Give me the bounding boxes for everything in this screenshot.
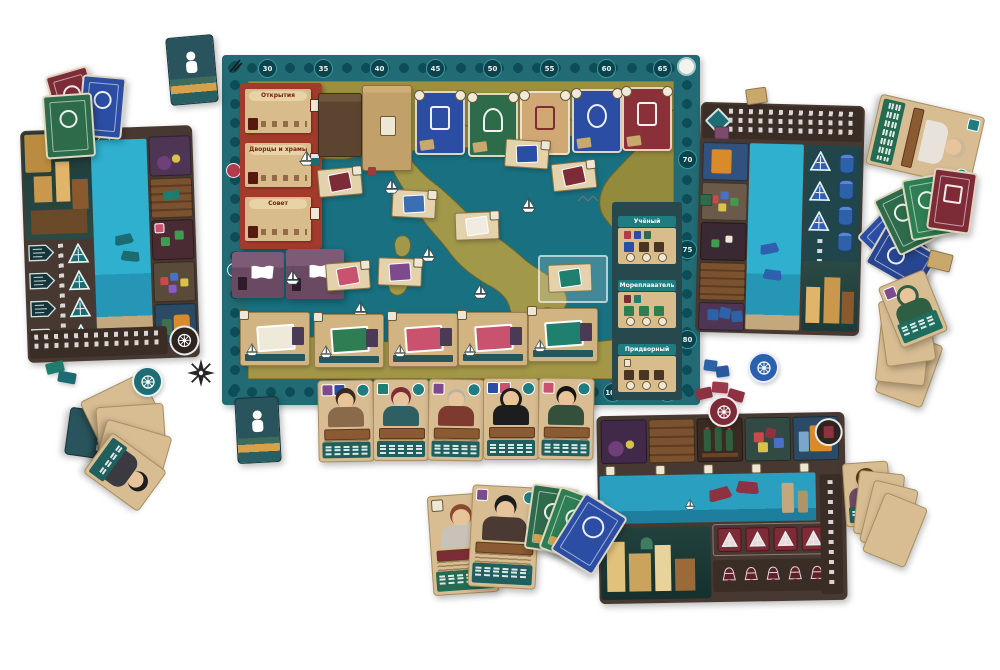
- harbor-town-scene: [801, 261, 859, 332]
- port-tile: [504, 138, 550, 169]
- goods-icon: [430, 106, 450, 130]
- resource-slot-planks: [150, 177, 193, 218]
- market-card-maroon: [622, 87, 672, 151]
- port-tile: [317, 166, 363, 198]
- action-row-label: Совет: [249, 199, 307, 209]
- maroon-piece: [695, 386, 713, 400]
- port-card: [458, 312, 528, 366]
- goods-icon: [587, 104, 607, 128]
- resource-slot-planks: [648, 418, 695, 463]
- red-cube-token: [368, 167, 376, 175]
- resource-slot-grapes: [698, 302, 745, 331]
- ship-icon: [284, 269, 301, 286]
- pennant-slot-icon: [28, 270, 57, 292]
- role-label: Придворный: [618, 344, 676, 355]
- maroon-piece: [712, 381, 729, 393]
- card-text-footer: [472, 562, 533, 585]
- stone-tower: [782, 483, 795, 513]
- goods-icon: [483, 108, 503, 132]
- score-number: 60: [597, 59, 616, 78]
- bell-token-red: [765, 565, 781, 583]
- ship-icon: [319, 345, 333, 359]
- wheel-disc-teal: [132, 366, 163, 397]
- ship-icon: [383, 178, 400, 195]
- resource-slot-grapes: [600, 419, 647, 464]
- stone-tower: [798, 491, 808, 513]
- quill-ornament-icon: [228, 58, 244, 74]
- action-icons: [261, 175, 307, 181]
- port-tile: [548, 263, 593, 293]
- ship-icon: [684, 498, 696, 510]
- score-number: 40: [370, 59, 389, 78]
- sail-token-blue: [807, 181, 832, 203]
- score-number: 30: [258, 59, 277, 78]
- shipyard-section: [801, 145, 862, 332]
- sail-token-blue: [808, 151, 833, 173]
- slot-cost-badge: [655, 465, 665, 475]
- marker-slot: [248, 172, 258, 184]
- player-board-blue: [695, 102, 865, 336]
- role-panel-column: Учёный Мореплаватель Придворный: [612, 202, 682, 400]
- blue-boat-piece: [758, 242, 779, 255]
- card-text-footer: [541, 440, 589, 457]
- teal-boat-piece: [120, 250, 141, 262]
- sail-token-blue: [807, 211, 832, 233]
- resource-slot-cellar: [700, 222, 747, 261]
- card-flap: [419, 139, 434, 151]
- red-boat-piece: [707, 485, 733, 503]
- sail-token-teal: [68, 297, 93, 319]
- ship-icon: [533, 339, 547, 353]
- harbor-water: [90, 139, 153, 333]
- red-boat-piece: [735, 481, 760, 495]
- bell-token-red: [787, 565, 803, 583]
- sail-token-teal: [67, 270, 92, 292]
- port-tile: [325, 260, 371, 291]
- slot-cost-badge: [751, 463, 761, 473]
- score-number: 70: [678, 150, 697, 169]
- score-number: 35: [314, 59, 333, 78]
- market-card-blue: [572, 89, 622, 153]
- wheel-icon: [169, 325, 200, 356]
- highlight-frame: [538, 255, 608, 303]
- bell-track: [713, 558, 832, 592]
- ship-icon: [463, 343, 477, 357]
- teal-piece: [163, 190, 180, 202]
- main-board: 30 35 40 45 50 55 60 65 70 75 80 95 100: [222, 55, 700, 405]
- market-card-blue: [415, 91, 465, 155]
- ship-icon: [393, 344, 407, 358]
- character-card: [483, 378, 539, 460]
- action-row: Открытия: [245, 89, 311, 133]
- card-text-footer: [487, 440, 535, 456]
- bell-token-red: [743, 565, 759, 583]
- player-board-teal: [20, 125, 200, 363]
- score-number: 50: [483, 59, 502, 78]
- ship-icon: [420, 246, 437, 263]
- blue-cube: [731, 310, 743, 322]
- name-banner: [434, 428, 480, 440]
- card-deck-tan: [362, 85, 412, 171]
- bottle-token-blue: [839, 154, 855, 174]
- port-tile: [378, 257, 423, 287]
- pennant-slot-icon: [27, 242, 56, 264]
- fan-card-maroon: [926, 167, 978, 235]
- red-sail-tile: [773, 527, 797, 551]
- bottle-token-blue: [839, 180, 855, 200]
- reference-card-person: [234, 396, 281, 464]
- ship-icon: [245, 343, 259, 357]
- card-flap: [626, 135, 641, 147]
- blue-cube: [719, 307, 732, 320]
- port-card: [388, 313, 458, 367]
- holder-slot: [238, 277, 247, 290]
- score-number: 55: [540, 59, 559, 78]
- action-icons: [261, 121, 307, 127]
- rosette-marker: [677, 57, 696, 76]
- resource-slot-goods: [153, 261, 196, 302]
- character-card: [427, 379, 484, 462]
- bonus-tile-purple: [714, 126, 729, 139]
- score-number: 45: [426, 59, 445, 78]
- pennant-slot-icon: [29, 298, 58, 320]
- blue-cube: [707, 309, 718, 320]
- action-icon-strip: [29, 326, 168, 359]
- person-icon: [180, 48, 202, 76]
- bottle-token-blue: [838, 206, 854, 226]
- player-board-red: [596, 412, 847, 604]
- red-sail-tile: [745, 527, 769, 551]
- building-icon: [637, 102, 657, 126]
- port-card: [314, 314, 384, 368]
- card-holder-purple: [232, 252, 284, 298]
- action-icon-strip: [819, 474, 843, 594]
- name-banner: [324, 429, 370, 441]
- table-scene: 30 35 40 45 50 55 60 65 70 75 80 95 100: [0, 0, 1000, 670]
- tier-badge: [310, 207, 320, 220]
- building-icon: [535, 106, 555, 130]
- card-text-footer: [870, 98, 906, 165]
- name-banner: [489, 427, 535, 438]
- card-flap: [576, 137, 591, 149]
- bell-token-red: [721, 566, 737, 584]
- slot-cost-badge: [605, 466, 615, 476]
- flag-icon: [248, 264, 276, 283]
- fan-card-green: [42, 92, 96, 159]
- port-card: [528, 308, 598, 362]
- ship-icon: [520, 197, 537, 214]
- blue-boat-piece: [762, 269, 783, 282]
- bonus-tile-green: [699, 194, 712, 206]
- harbor-water: [745, 143, 804, 330]
- port-tile: [455, 211, 500, 241]
- role-label: Мореплаватель: [618, 280, 676, 291]
- harbor-water: [599, 472, 816, 524]
- score-number: 65: [653, 59, 672, 78]
- resource-slot-cellar: [151, 219, 194, 260]
- card-flap: [472, 141, 487, 153]
- port-tile: [551, 160, 598, 192]
- wheel-disc-blue: [748, 352, 779, 383]
- character-card: [537, 378, 594, 461]
- resource-slot-goods: [744, 417, 791, 462]
- marker-slot: [248, 118, 258, 130]
- red-sail-tile: [717, 528, 741, 552]
- compass-rose-icon: [186, 358, 216, 388]
- teal-cube-token: [311, 158, 320, 166]
- resource-slot-planks: [699, 262, 746, 301]
- slot-cost-badge: [703, 464, 713, 474]
- bonus-tile-tan: [745, 87, 768, 106]
- marker-slot: [248, 226, 258, 238]
- character-card: [317, 380, 374, 463]
- blue-cube: [715, 365, 729, 378]
- person-icon: [247, 408, 268, 435]
- action-icons: [261, 229, 307, 235]
- deck-emblem: [380, 116, 396, 136]
- name-banner: [544, 427, 590, 439]
- port-card: [240, 312, 310, 366]
- card-text-footer: [431, 441, 479, 458]
- teal-boat-piece: [113, 233, 135, 247]
- score-track-top: [224, 56, 698, 80]
- action-row-label: Открытия: [249, 91, 307, 101]
- sail-track: [712, 522, 833, 556]
- ship-icon: [472, 283, 489, 300]
- bottle-token-blue: [837, 232, 853, 252]
- score-marker-red: [226, 163, 241, 178]
- role-panel: [618, 292, 676, 328]
- reference-card-person: [165, 34, 219, 106]
- slot-cost-badge: [799, 462, 809, 472]
- role-label: Учёный: [618, 216, 676, 227]
- name-banner: [379, 428, 425, 439]
- card-text-footer: [377, 441, 425, 457]
- role-panel: [618, 228, 676, 264]
- sail-token-teal: [66, 243, 91, 265]
- teal-piece: [57, 371, 77, 385]
- resource-slot-grapes: [148, 135, 191, 176]
- card-deck-dark: [318, 93, 362, 157]
- resource-slot-cabinet: [702, 142, 749, 181]
- wheel-disc-maroon: [708, 396, 739, 427]
- action-row: Совет: [245, 197, 311, 241]
- character-card: [373, 379, 429, 461]
- harbor-town-scene: [600, 526, 711, 600]
- card-text-footer: [322, 442, 370, 459]
- role-panel: [618, 356, 676, 392]
